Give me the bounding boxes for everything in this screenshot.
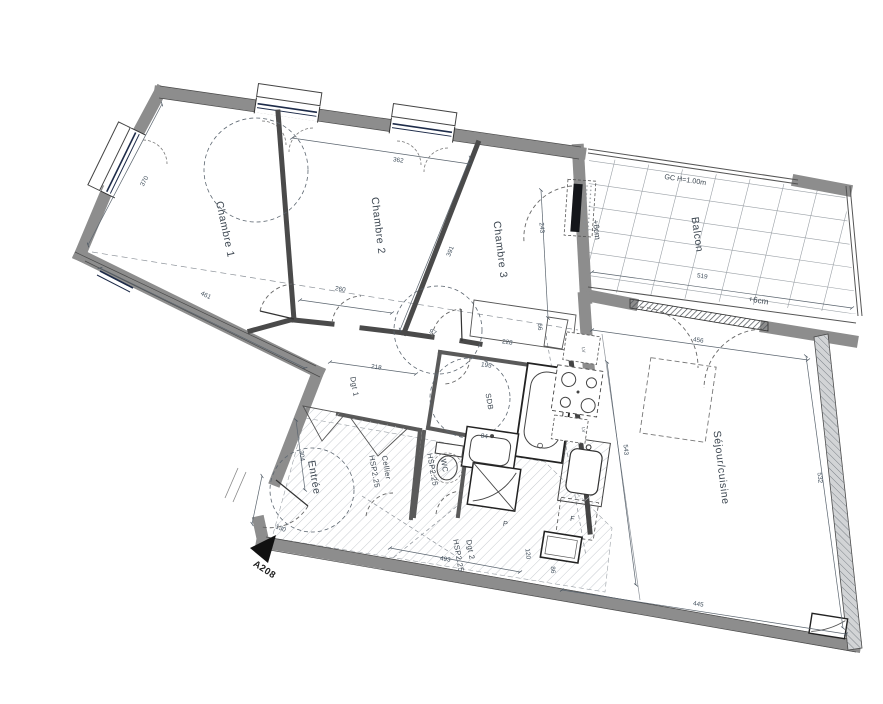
window-chambre1-left (88, 122, 146, 198)
dim-placard-w: 228 (501, 338, 513, 347)
dim-entree-h: 304 (297, 450, 305, 462)
room-label-balcon: Balcon (689, 216, 706, 253)
floor-plan-drawing: 370 461 362 260 391 243 228 66 97 218 19… (0, 0, 883, 704)
room-label-chambre3: Chambre 3 (491, 220, 510, 278)
room-label-sdb: SDB (484, 392, 496, 410)
dim-placard-h: 66 (536, 323, 544, 331)
laundry-box (540, 531, 582, 563)
sejour-furniture-dashed (640, 358, 716, 443)
dim-ch3-right: 243 (538, 222, 546, 234)
dim-k86: 86 (549, 566, 557, 574)
balcony-railing (588, 149, 862, 323)
dim-ch2-ch3-wall: 391 (445, 245, 456, 258)
dim-sejour-right: 532 (816, 472, 824, 484)
kitchen-sink (558, 437, 611, 507)
chambre3-balcony-door-arc (524, 186, 572, 242)
unit-number: A208 (251, 559, 278, 582)
balcony-glass-door (630, 299, 768, 331)
window-chambre2 (389, 104, 457, 143)
party-wall-hatch (814, 334, 862, 650)
room-label-sejour: Séjour/cuisine (710, 430, 731, 505)
dim-ch2-top: 362 (392, 156, 404, 165)
room-label-dgt1: Dgt 1 (348, 376, 360, 397)
dim-left-wall: 370 (139, 175, 150, 188)
shower-box (467, 463, 521, 511)
entry-landing (225, 468, 246, 502)
kitchen-stove (551, 365, 603, 417)
dim-ch1-bottom: 461 (199, 290, 212, 301)
level-note-wall: +6cm (591, 219, 602, 240)
dim-kitchen-543: 543 (622, 444, 630, 456)
dim-sejour-bottom: 445 (692, 600, 704, 609)
room-label-chambre1: Chambre 1 (213, 200, 237, 259)
placard-chambre3 (470, 300, 576, 351)
dim-sdb-195: 195 (480, 361, 492, 370)
dim-ch2-bottom: 260 (334, 285, 346, 294)
dim-balcon-len: 519 (696, 272, 708, 281)
room-label-chambre2: Chambre 2 (369, 196, 388, 254)
dim-dgt1: 218 (370, 363, 382, 372)
guardrail-note: GC H=1.00m (664, 172, 707, 187)
dim-k120: 120 (524, 548, 532, 560)
window-chambre1 (254, 84, 322, 123)
floor-plan-page: 370 461 362 260 391 243 228 66 97 218 19… (0, 0, 883, 704)
level-note-balcony: +6cm (748, 295, 770, 307)
dim-sejour-top: 456 (692, 336, 704, 345)
